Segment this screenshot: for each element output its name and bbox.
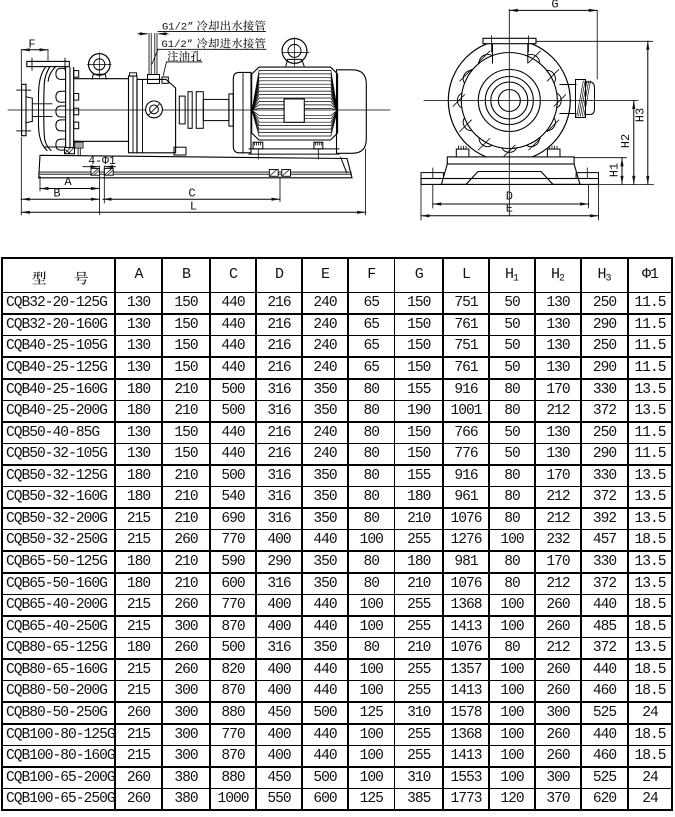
svg-text:F: F (28, 38, 35, 52)
svg-text:H1: H1 (608, 163, 622, 177)
svg-text:G1/2”: G1/2” (162, 21, 194, 33)
svg-text:A: A (64, 175, 72, 189)
svg-text:L: L (190, 199, 197, 213)
svg-text:G1/2”: G1/2” (162, 39, 194, 51)
svg-text:G: G (551, 0, 558, 11)
svg-text:E: E (506, 201, 513, 215)
svg-text:H2: H2 (619, 134, 633, 148)
svg-text:B: B (53, 187, 60, 201)
svg-text:H3: H3 (634, 108, 648, 122)
